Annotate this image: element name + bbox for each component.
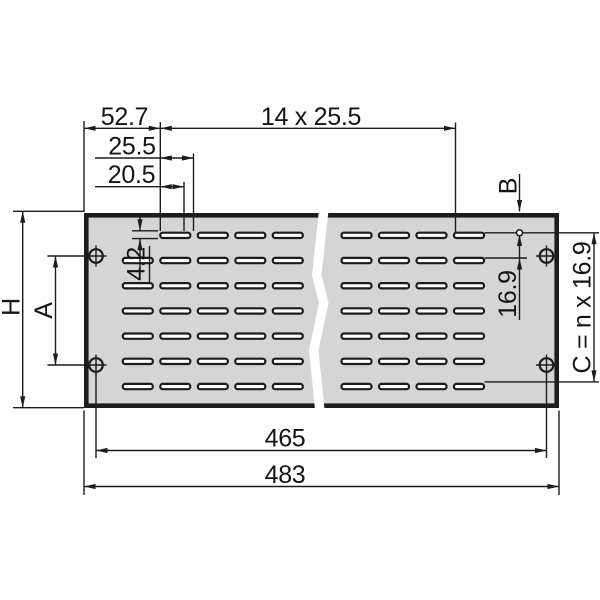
vent-slot [342, 258, 372, 263]
vent-slot [160, 308, 190, 313]
dim-top-margin-B: B [495, 174, 523, 212]
vent-slot [273, 334, 303, 339]
rack-panel-dimension-drawing: 52.7 14 x 25.5 25.5 20.5 4.2 H A B [0, 0, 600, 600]
vent-slot [417, 233, 447, 238]
vent-slot [342, 308, 372, 313]
vent-slot [235, 384, 265, 389]
dim-label-52-7: 52.7 [101, 103, 148, 131]
vent-slot [198, 258, 228, 263]
dim-label-4-2: 4.2 [123, 247, 151, 281]
vent-slot [123, 334, 153, 339]
vent-slot [160, 334, 190, 339]
vent-slot [379, 308, 409, 313]
vent-slot [417, 334, 447, 339]
vent-slot [160, 283, 190, 288]
technical-drawing-page: 52.7 14 x 25.5 25.5 20.5 4.2 H A B [0, 0, 600, 600]
vent-slot [379, 233, 409, 238]
dim-label-14x25-5: 14 x 25.5 [261, 103, 361, 131]
vent-slot [160, 258, 190, 263]
vent-slot [235, 334, 265, 339]
vent-slot [342, 334, 372, 339]
vent-slot [417, 384, 447, 389]
dim-label-c-formula: C = n x 16.9 [569, 242, 597, 374]
vent-slot [123, 359, 153, 364]
vent-slot [235, 233, 265, 238]
vent-slot [273, 384, 303, 389]
dim-label-465: 465 [265, 425, 306, 453]
dim-label-B: B [495, 178, 523, 194]
dim-label-A: A [30, 302, 58, 319]
vent-slot [379, 359, 409, 364]
vent-slot [454, 334, 484, 339]
vent-slot [454, 359, 484, 364]
vent-slot [273, 283, 303, 288]
vent-slot [417, 359, 447, 364]
vent-slot [379, 384, 409, 389]
vent-slot [198, 359, 228, 364]
vent-slot [273, 233, 303, 238]
dim-label-16-9: 16.9 [494, 270, 522, 317]
vent-slot [160, 384, 190, 389]
vent-slot [198, 384, 228, 389]
vent-slot [454, 308, 484, 313]
vent-slot [417, 283, 447, 288]
vent-slot [198, 334, 228, 339]
vent-slot [342, 283, 372, 288]
vent-slot [123, 384, 153, 389]
dim-label-20-5: 20.5 [108, 161, 155, 189]
vent-slot [198, 308, 228, 313]
vent-slot [379, 283, 409, 288]
vent-slot [417, 308, 447, 313]
vent-slot [235, 308, 265, 313]
vent-slot [273, 258, 303, 263]
vent-slot [379, 334, 409, 339]
vent-slot [273, 359, 303, 364]
vent-slot [454, 384, 484, 389]
vent-slot [454, 258, 484, 263]
vent-slot [379, 258, 409, 263]
vent-slot [123, 308, 153, 313]
vent-slot [342, 233, 372, 238]
dim-overall-width-483: 483 [84, 411, 559, 496]
vent-slot [235, 283, 265, 288]
vent-slot [454, 233, 484, 238]
vent-slot [160, 359, 190, 364]
dim-hole-spacing-A: A [30, 256, 84, 365]
vent-slot [198, 233, 228, 238]
vent-slot [235, 359, 265, 364]
reference-point-dot [517, 230, 523, 236]
vent-slot [123, 283, 153, 288]
dim-label-483: 483 [265, 461, 306, 489]
dim-label-H: H [0, 298, 26, 316]
vent-slot [198, 283, 228, 288]
vent-slot [273, 308, 303, 313]
dim-label-25-5: 25.5 [108, 133, 155, 161]
vent-slot [342, 359, 372, 364]
vent-slot [454, 283, 484, 288]
vent-slot [160, 233, 190, 238]
vent-slot [417, 258, 447, 263]
vent-slot [342, 384, 372, 389]
vent-slot [235, 258, 265, 263]
